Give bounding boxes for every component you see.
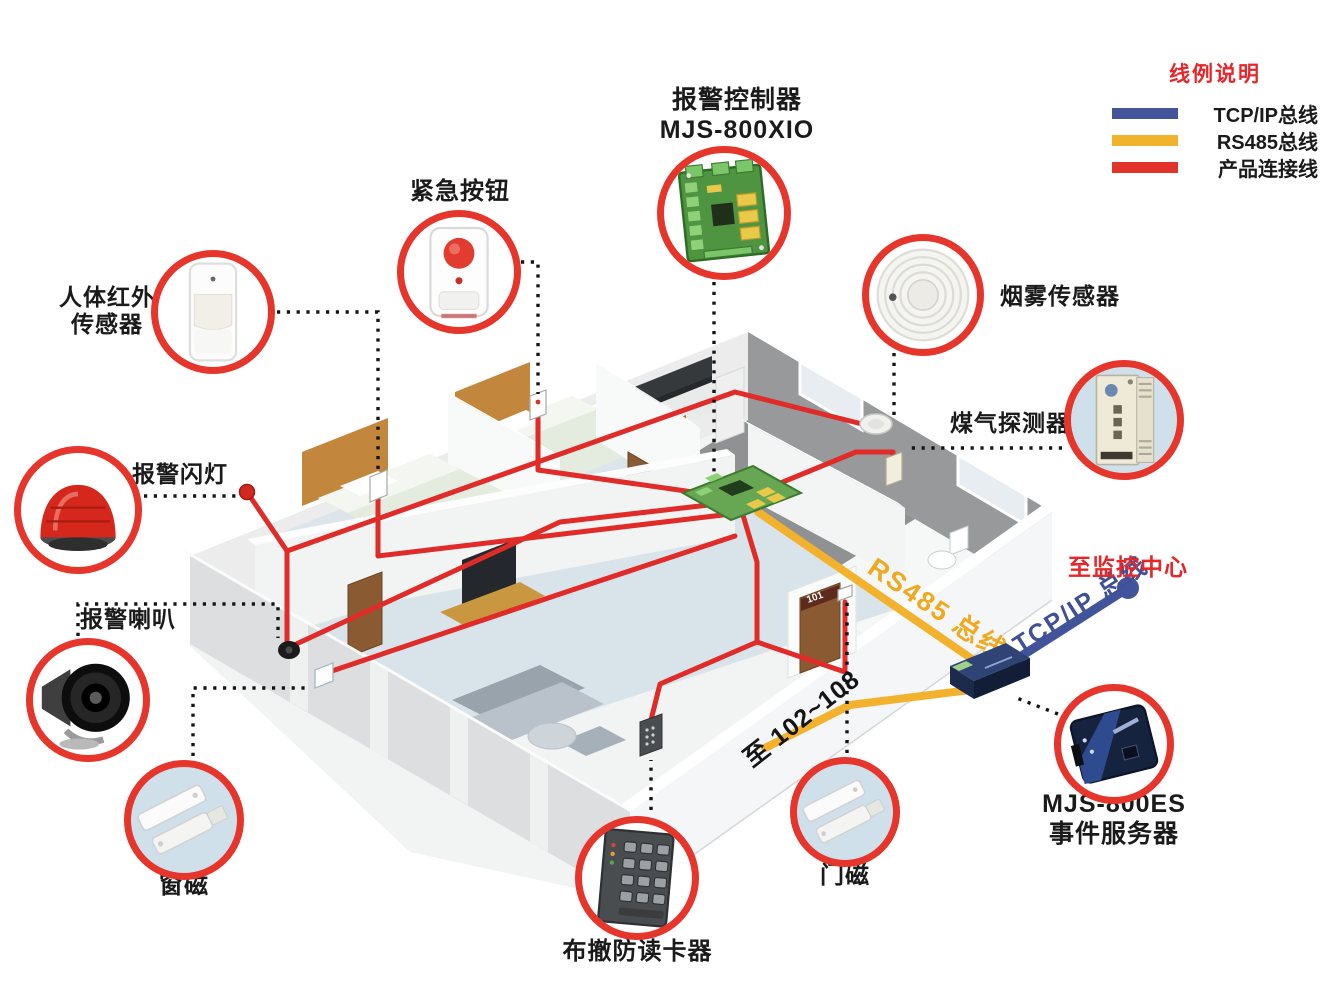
server-box-icon bbox=[1061, 691, 1167, 797]
gas-detector-callout bbox=[1064, 360, 1184, 480]
magnetic-contact-icon bbox=[797, 764, 893, 860]
pir-label-line2: 传感器 bbox=[71, 311, 143, 337]
gas-scene bbox=[886, 452, 902, 486]
tcpip-line-swatch bbox=[1112, 108, 1178, 119]
gas-label: 煤气探测器 bbox=[950, 410, 1070, 437]
card-reader-label: 布撤防读卡器 bbox=[540, 938, 735, 966]
circuit-board-icon bbox=[664, 153, 784, 273]
legend-label-tcpip: TCP/IP总线 bbox=[1192, 99, 1318, 128]
rs485-line-swatch bbox=[1112, 135, 1178, 146]
to-monitor-center-label: 至监控中心 bbox=[1048, 554, 1208, 581]
emergency-label: 紧急按钮 bbox=[410, 178, 510, 206]
product-line-swatch bbox=[1112, 162, 1178, 173]
card-reader-callout bbox=[575, 816, 699, 940]
keypad-scene bbox=[640, 714, 662, 756]
door-magnet-callout bbox=[790, 757, 900, 867]
pir-label-line1: 人体红外 bbox=[59, 284, 155, 310]
window-magnet-callout bbox=[124, 760, 244, 880]
siren-callout bbox=[26, 638, 150, 762]
siren-label: 报警喇叭 bbox=[80, 606, 176, 633]
legend-row-product: 产品连接线 bbox=[1112, 154, 1318, 181]
strobe-callout bbox=[14, 446, 142, 574]
strobe-scene bbox=[240, 485, 255, 500]
smoke-label: 烟雾传感器 bbox=[1000, 283, 1120, 310]
emergency-button-callout bbox=[397, 210, 521, 334]
legend-label-rs485: RS485总线 bbox=[1192, 126, 1318, 155]
security-system-diagram: { "legend": { "title": "线例说明", "items": … bbox=[0, 0, 1321, 984]
legend-row-tcpip: TCP/IP总线 bbox=[1112, 100, 1318, 127]
emergency-scene bbox=[530, 390, 546, 420]
strobe-light-icon bbox=[21, 453, 135, 567]
motion-sensor-icon bbox=[158, 257, 268, 367]
legend-title: 线例说明 bbox=[1112, 58, 1318, 88]
pir-sensor-callout bbox=[151, 250, 275, 374]
legend-row-rs485: RS485总线 bbox=[1112, 127, 1318, 154]
magnetic-contact-icon bbox=[131, 767, 237, 873]
smoke-sensor-callout bbox=[862, 234, 984, 356]
controller-label: 报警控制器 MJS-800XIO bbox=[612, 86, 862, 145]
controller-label-line2: MJS-800XIO bbox=[660, 116, 815, 144]
legend-label-product: 产品连接线 bbox=[1192, 153, 1318, 182]
gas-alarm-icon bbox=[1071, 367, 1177, 473]
smoke-detector-icon bbox=[869, 241, 977, 349]
line-legend: 线例说明 TCP/IP总线 RS485总线 产品连接线 bbox=[1112, 58, 1318, 181]
controller-label-line1: 报警控制器 bbox=[672, 86, 802, 114]
strobe-label: 报警闪灯 bbox=[132, 461, 228, 488]
event-server-callout bbox=[1054, 684, 1174, 804]
siren-horn-icon bbox=[33, 645, 143, 755]
controller-callout bbox=[657, 146, 791, 280]
server-label-line2: 事件服务器 bbox=[1049, 820, 1179, 848]
panic-button-icon bbox=[404, 217, 514, 327]
keypad-icon bbox=[582, 823, 692, 933]
